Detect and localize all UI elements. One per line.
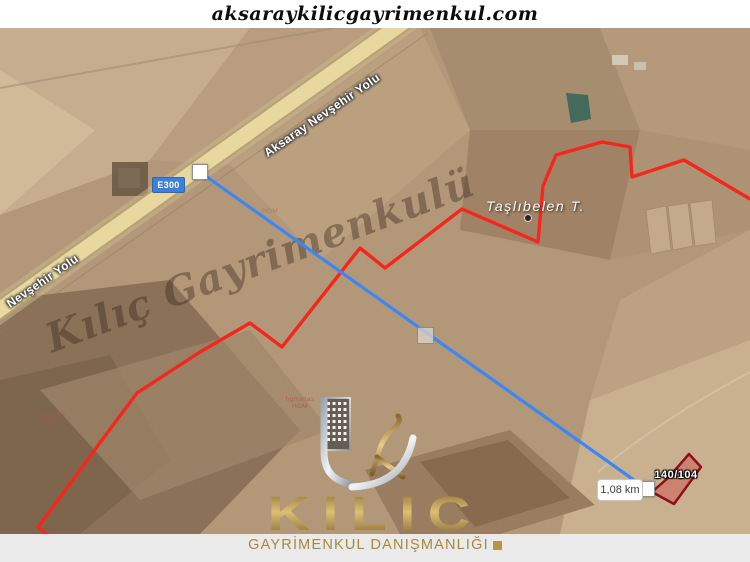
- site-url-text: aksaraykilicgayrimenkul.com: [212, 3, 539, 25]
- parcel-number-label: 140/104: [646, 469, 706, 481]
- page: Kılıç Gayrimenkulü Aksaray Nevşehir Yolu…: [0, 0, 750, 562]
- distance-label: 1,08 km: [597, 479, 643, 501]
- place-dot-icon[interactable]: [524, 214, 532, 222]
- header-bar: aksaraykilicgayrimenkul.com: [0, 0, 750, 28]
- footer-bar: GAYRİMENKUL DANIŞMANLIĞI: [0, 534, 750, 562]
- logo-wordmark: KILIC: [255, 490, 495, 536]
- svg-text:KILIC: KILIC: [268, 490, 483, 536]
- place-label-taslibelen: Taşlıbelen T.: [486, 198, 606, 214]
- logo-tagline: GAYRİMENKUL DANIŞMANLIĞI: [248, 537, 502, 553]
- measure-midpoint-handle[interactable]: [417, 327, 434, 344]
- route-badge-e300: E300: [152, 177, 185, 193]
- measure-start-marker[interactable]: [192, 164, 208, 180]
- gold-square-icon: [493, 541, 502, 550]
- kilic-logo-emblem-icon: [300, 386, 418, 498]
